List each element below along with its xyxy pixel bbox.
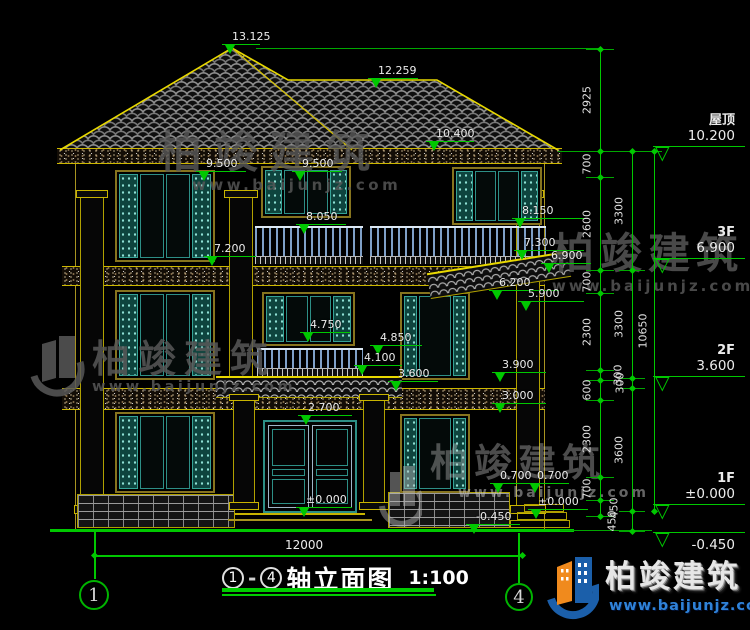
watermark-url: www.baijunjz.com [92,379,296,395]
triangle-down-icon [517,251,527,265]
floor-elevation-value: ±0.000 [685,486,735,502]
title-scale: 1:100 [408,567,468,589]
door-panel [316,429,349,466]
elevation-value: 12.259 [378,64,417,77]
grid-bubble-1: 1 [79,580,109,610]
elevation-value: 4.850 [380,331,412,344]
title-axis-end-bubble: 4 [260,567,282,589]
window-ornament-panel [456,171,473,221]
porch-column-base-left [229,502,259,510]
triangle-down-icon [495,373,505,387]
dim-value: 300 [614,373,627,394]
elevation-drawing-canvas: 12000 1 4 13.12512.25910.4009.5009.5008.… [0,0,750,630]
watermark-logo-icon [378,460,422,528]
triangle-down-icon [492,291,502,305]
dim-value: 2925 [581,86,594,114]
brick-base-left [77,494,235,528]
window-ornament-panel [119,174,138,258]
triangle-hollow-icon: ▽ [655,257,670,273]
triangle-down-icon [495,404,505,418]
elevation-value: 9.500 [206,157,238,170]
elevation-value: 7.300 [524,236,556,249]
elevation-value: 10.400 [436,127,475,140]
elevation-value: 0.700 [500,469,532,482]
pilaster-cap-left [76,190,108,198]
floor-label: 2F [717,343,735,358]
ext-line-peak [256,48,602,49]
triangle-down-icon [225,45,235,59]
brand-logo-url: www.baijunjz.com [609,598,750,614]
watermark-logo-icon [28,328,86,398]
door-panel [316,469,349,476]
porch-column-cap-right [359,394,389,401]
triangle-hollow-icon: ▽ [655,503,670,519]
dim-chain-line [632,151,633,531]
dim-value: 700 [581,478,594,499]
door-panel [272,469,305,476]
elevation-value: 4.100 [364,351,396,364]
balcony-rail-base [255,256,363,264]
triangle-down-icon [531,510,541,524]
dim-value: 3600 [613,436,626,464]
triangle-hollow-icon: ▽ [655,145,670,161]
triangle-down-icon [295,172,305,186]
watermark-top: 柏竣建筑 www.baijunjz.com [158,116,401,194]
dim-value: 3300 [613,197,626,225]
triangle-down-icon [357,366,367,380]
elevation-value: 3.900 [502,358,534,371]
triangle-down-icon [544,264,554,278]
title-axis-separator: - [248,566,256,590]
dim-value: 3300 [613,310,626,338]
elevation-value: 9.500 [302,157,334,170]
floor-elevation-value: 10.200 [688,128,735,144]
elevation-value: 8.050 [306,210,338,223]
triangle-down-icon [301,416,311,430]
elevation-value: 0.700 [537,469,569,482]
window-pane [166,416,190,489]
dim-value: 700 [581,271,594,292]
floor-label: 1F [717,471,735,486]
dim-value: 2300 [581,425,594,453]
brand-logo-icon [545,545,599,627]
watermark-left: 柏竣建筑 www.baijunjz.com [28,328,296,398]
ground-line [50,529,574,532]
triangle-down-icon [371,79,381,93]
triangle-down-icon [493,484,503,498]
dim-value: 2600 [581,210,594,238]
triangle-down-icon [429,142,439,156]
elevation-value: 6.900 [551,249,583,262]
title-axis-start-bubble: 1 [222,567,244,589]
elevation-value: ±0.000 [306,493,347,506]
window-ornament-panel [119,416,138,489]
dim-chain-line [654,151,655,511]
elevation-value: 5.900 [528,287,560,300]
brand-logo-text: 柏竣建筑 [605,551,750,596]
triangle-down-icon [515,219,525,233]
floor-label: 3F [717,225,735,240]
title-underline-thick [222,588,434,592]
triangle-down-icon [521,302,531,316]
door-leaf [268,425,309,508]
elevation-value: -0.450 [476,510,511,523]
elevation-value: 8.150 [522,204,554,217]
elevation-value: ±0.000 [538,495,579,508]
dim-chain-line [600,49,601,516]
porch-column-left [233,398,255,506]
door-panel [272,479,305,504]
title-underline-thin [222,594,436,596]
triangle-down-icon [299,508,309,522]
dim-value: 450 [606,511,619,532]
window-ornament-panel [453,296,466,376]
window-1f-left [115,412,215,493]
triangle-down-icon [391,382,401,396]
elevation-value: 13.125 [232,30,271,43]
brand-logo: 柏竣建筑 www.baijunjz.com [545,545,750,627]
elevation-value: 2.700 [308,401,340,414]
window-ornament-panel [192,416,211,489]
balcony-rail-3f-middle [255,226,363,264]
floor-elevation-value: 6.900 [696,240,735,256]
window-pane [498,171,519,221]
window-pane [475,171,496,221]
elevation-value: 4.750 [310,318,342,331]
window-pane [140,416,164,489]
triangle-down-icon [303,333,313,347]
elevation-value: 3.600 [398,367,430,380]
bottom-dim-line [95,555,524,557]
elevation-value: 6.200 [499,276,531,289]
floor-elevation-value: 3.600 [696,358,735,374]
grid-line-4 [518,533,520,583]
grid-bubble-4: 4 [505,583,533,611]
dim-value: 10650 [637,314,650,349]
window-pane [419,296,451,376]
elevation-value: 3.000 [502,389,534,402]
floor-label: 屋顶 [709,109,735,128]
triangle-down-icon [299,225,309,239]
triangle-down-icon [469,525,479,539]
door-panel [272,429,305,466]
triangle-down-icon [199,172,209,186]
triangle-hollow-icon: ▽ [655,375,670,391]
elevation-value: 7.200 [214,242,246,255]
dim-value: 700 [581,154,594,175]
bottom-dim-value: 12000 [285,538,323,552]
dim-value: 600 [581,380,594,401]
dim-value: 2300 [581,318,594,346]
triangle-down-icon [207,257,217,271]
watermark-brand: 柏竣建筑 [92,328,296,383]
watermark-brand: 柏竣建筑 [158,116,401,180]
